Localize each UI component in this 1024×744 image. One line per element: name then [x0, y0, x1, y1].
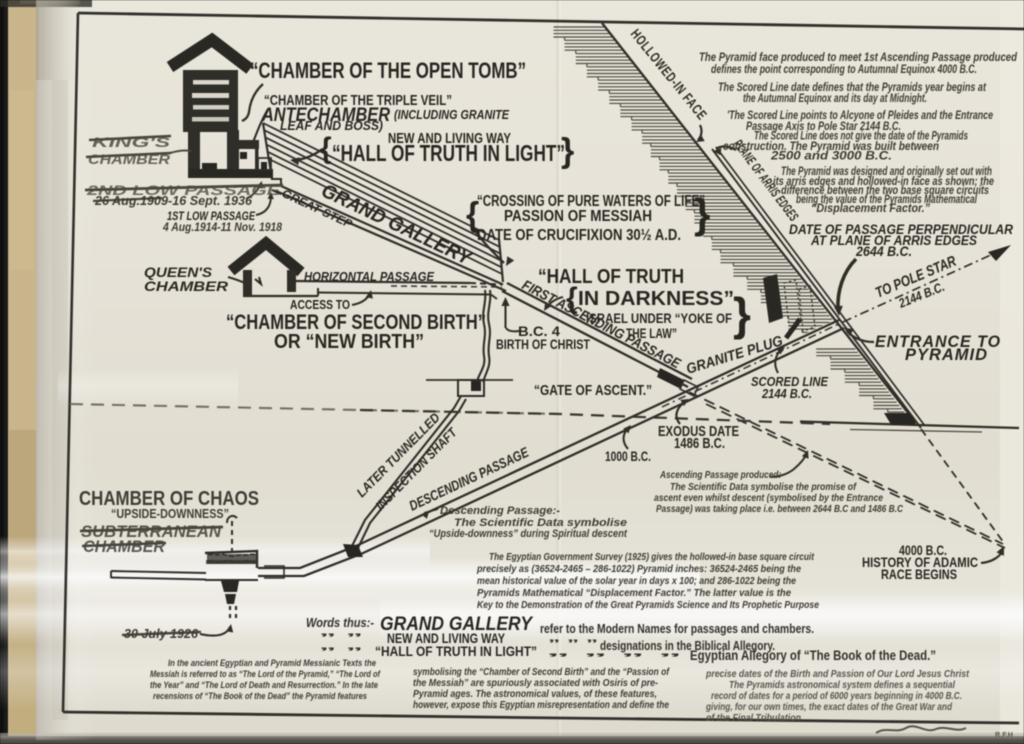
svg-text:precisely as (36524-2465 – 286: precisely as (36524-2465 – 286-1022) Pyr…: [476, 563, 801, 575]
svg-text:CHAMBER: CHAMBER: [88, 151, 171, 167]
svg-text:“UPSIDE-DOWNNESS”: “UPSIDE-DOWNNESS”: [111, 506, 229, 521]
svg-text:defines the point correspondin: defines the point corresponding to Autum…: [711, 64, 977, 76]
svg-text:precise dates of the Birth and: precise dates of the Birth and Passion o…: [705, 669, 969, 680]
svg-text:BIRTH OF CHRIST: BIRTH OF CHRIST: [496, 337, 591, 352]
svg-text:Descending Passage:-: Descending Passage:-: [440, 505, 560, 517]
svg-text:2500 and 3000 B.C.: 2500 and 3000 B.C.: [770, 151, 892, 163]
svg-text:of the Final Tribulation: of the Final Tribulation: [706, 713, 801, 724]
svg-text:“GATE OF ASCENT.”: “GATE OF ASCENT.”: [534, 383, 652, 399]
svg-text:{: {: [320, 132, 332, 165]
svg-text:“HALL OF TRUTH: “HALL OF TRUTH: [538, 266, 684, 288]
svg-text:R.F.H: R.F.H: [995, 730, 1013, 739]
svg-text:PYRAMID: PYRAMID: [905, 346, 988, 364]
svg-text:Egyptian Allegory of “The Book: Egyptian Allegory of “The Book of the De…: [690, 647, 936, 663]
svg-text:DATE OF CRUCIFIXION 30½ A.D.: DATE OF CRUCIFIXION 30½ A.D.: [477, 227, 681, 244]
svg-text:The Egyptian Government Survey: The Egyptian Government Survey (1925) gi…: [489, 551, 814, 563]
svg-text:2144 B.C.: 2144 B.C.: [761, 386, 812, 401]
svg-text:however, expose this Egyptian: however, expose this Egyptian misreprese…: [413, 699, 669, 711]
svg-text:}: }: [733, 288, 751, 340]
svg-text:” ”: ” ”: [319, 646, 363, 658]
svg-text:The Pyramid face produced to m: The Pyramid face produced to meet 1st As…: [699, 52, 1018, 64]
svg-text:“CHAMBER OF THE OPEN TOMB”: “CHAMBER OF THE OPEN TOMB”: [250, 58, 526, 83]
svg-text:4 Aug.1914-11 Nov. 1918: 4 Aug.1914-11 Nov. 1918: [162, 220, 282, 234]
svg-text:RACE BEGINS: RACE BEGINS: [881, 566, 957, 582]
svg-text:Ascending Passage produced:-: Ascending Passage produced:-: [659, 469, 784, 481]
svg-text:}: }: [561, 132, 574, 170]
svg-text:giving, for our own times, the: giving, for our own times, the exact dat…: [705, 702, 953, 713]
svg-text:Pyramids Mathematical “Displac: Pyramids Mathematical “Displacement Fact…: [477, 587, 791, 599]
svg-text:CHAMBER: CHAMBER: [144, 279, 228, 294]
svg-text:ISRAEL UNDER “YOKE OF: ISRAEL UNDER “YOKE OF: [586, 310, 732, 326]
svg-text:}: }: [694, 190, 710, 237]
svg-text:” ” ”: ” ” ”: [548, 638, 598, 650]
svg-text:mean historical value of the s: mean historical value of the solar year …: [477, 575, 796, 587]
svg-text:1486 B.C.: 1486 B.C.: [674, 435, 725, 452]
svg-text:QUEEN'S: QUEEN'S: [144, 265, 212, 280]
svg-text:Words thus:-: Words thus:-: [306, 616, 374, 630]
svg-text:IN DARKNESS”: IN DARKNESS”: [578, 288, 734, 310]
svg-text:ACCESS TO: ACCESS TO: [290, 297, 350, 312]
svg-text:recensions of “The Book of the: recensions of “The Book of the Dead” the…: [153, 691, 367, 702]
svg-text:KING'S: KING'S: [92, 134, 171, 150]
svg-text:In the ancient Egyptian and Py: In the ancient Egyptian and Pyramid Mess…: [168, 658, 377, 669]
svg-text:“Displacement Factor.”: “Displacement Factor.”: [811, 203, 930, 215]
svg-text:LEAF AND BOSS): LEAF AND BOSS): [280, 119, 383, 133]
svg-text:1000 B.C.: 1000 B.C.: [605, 448, 651, 464]
svg-text:CHAMBER: CHAMBER: [83, 538, 165, 556]
svg-text:THE LAW”: THE LAW”: [626, 325, 677, 341]
svg-text:“HALL OF TRUTH IN LIGHT”: “HALL OF TRUTH IN LIGHT”: [375, 643, 537, 659]
svg-text:30 July 1926: 30 July 1926: [124, 626, 199, 641]
svg-text:the Autumnal Equinox and its d: the Autumnal Equinox and its day at Midn…: [743, 93, 927, 105]
svg-text:refer to the Modern Names for: refer to the Modern Names for passages a…: [540, 621, 814, 636]
svg-text:” ”: ” ”: [319, 632, 363, 644]
svg-text:record of dates for a period o: record of dates for a period of 6000 yea…: [711, 691, 962, 702]
svg-text:“Upside-downness” during Spiri: “Upside-downness” during Spiritual desce…: [429, 528, 628, 540]
svg-text:Messiah is referred to as “The: Messiah is referred to as “The Lord of t…: [150, 669, 381, 680]
svg-text:26 Aug.1909-16 Sept. 1936: 26 Aug.1909-16 Sept. 1936: [94, 194, 253, 208]
svg-text:the Year” and “The Lord of Dea: the Year” and “The Lord of Death and Res…: [150, 680, 379, 691]
svg-text:PASSION OF MESSIAH: PASSION OF MESSIAH: [504, 208, 652, 225]
svg-text:The Pyramids astronomical syst: The Pyramids astronomical system defines…: [729, 680, 955, 691]
svg-text:2644 B.C.: 2644 B.C.: [855, 244, 912, 259]
svg-text:OR “NEW BIRTH”: OR “NEW BIRTH”: [274, 331, 424, 353]
svg-text:Key to the Demonstration of th: Key to the Demonstration of the Great Py…: [477, 599, 819, 611]
svg-text:(INCLUDING GRANITE: (INCLUDING GRANITE: [394, 108, 510, 122]
svg-text:{: {: [566, 282, 578, 315]
svg-text:” ” ” ”: ” ” ” ”: [546, 652, 682, 664]
svg-text:“HALL OF TRUTH IN LIGHT”: “HALL OF TRUTH IN LIGHT”: [332, 140, 565, 166]
svg-text:HORIZONTAL PASSAGE: HORIZONTAL PASSAGE: [304, 269, 434, 284]
svg-text:Passage) was taking place i.e.: Passage) was taking place i.e. between 2…: [656, 503, 903, 515]
